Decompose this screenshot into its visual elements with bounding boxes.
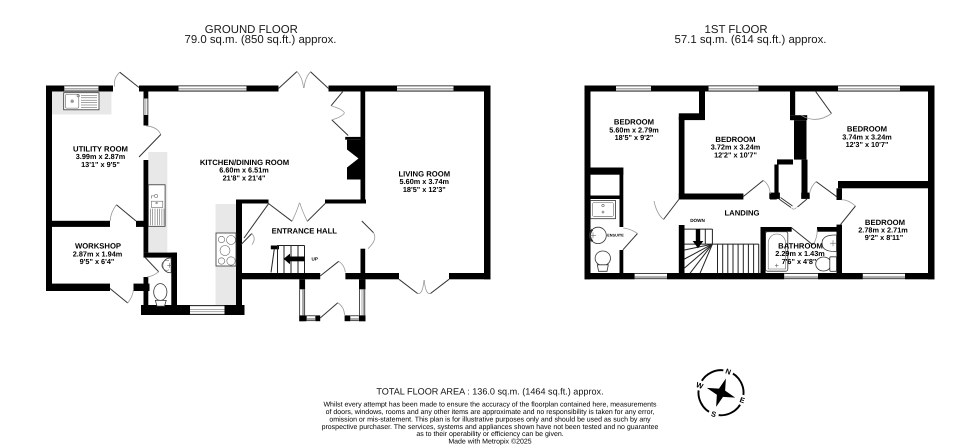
svg-text:79.0 sq.m. (850 sq.ft.) approx: 79.0 sq.m. (850 sq.ft.) approx. — [185, 34, 337, 46]
svg-text:13'1" x 9'5": 13'1" x 9'5" — [81, 160, 120, 169]
svg-text:12'2" x 10'7": 12'2" x 10'7" — [714, 151, 757, 160]
svg-text:18'5" x 12'3": 18'5" x 12'3" — [403, 185, 446, 194]
svg-text:UP: UP — [312, 257, 318, 262]
svg-text:TOTAL FLOOR AREA : 136.0 sq.m.: TOTAL FLOOR AREA : 136.0 sq.m. (1464 sq.… — [376, 387, 603, 397]
svg-text:prospective purchaser. The ser: prospective purchaser. The services, sys… — [322, 423, 659, 431]
svg-text:57.1 sq.m. (614 sq.ft.) approx: 57.1 sq.m. (614 sq.ft.) approx. — [675, 34, 827, 46]
svg-text:18'5" x 9'2": 18'5" x 9'2" — [615, 133, 654, 142]
svg-text:ENTRANCE HALL: ENTRANCE HALL — [272, 226, 338, 235]
svg-text:of doors, windows, rooms and a: of doors, windows, rooms and any other i… — [326, 408, 655, 416]
svg-text:LANDING: LANDING — [724, 208, 759, 217]
svg-text:9'5" x 6'4": 9'5" x 6'4" — [80, 257, 115, 266]
svg-text:Whilst every attempt has been: Whilst every attempt has been made to en… — [323, 401, 657, 409]
svg-text:DOWN: DOWN — [690, 218, 705, 223]
svg-text:as to their operability or eff: as to their operability or efficiency ca… — [416, 430, 563, 438]
svg-text:7'6" x 4'8": 7'6" x 4'8" — [782, 257, 817, 266]
svg-text:ENSUITE: ENSUITE — [607, 234, 624, 238]
svg-text:21'8" x 21'4": 21'8" x 21'4" — [223, 173, 266, 182]
svg-text:omission or mis-statement. Thi: omission or mis-statement. This plan is … — [329, 415, 651, 423]
svg-text:Made with Metropix ©2025: Made with Metropix ©2025 — [448, 438, 531, 446]
svg-text:12'3" x 10'7": 12'3" x 10'7" — [846, 140, 889, 149]
svg-text:9'2" x 8'11": 9'2" x 8'11" — [865, 233, 903, 242]
